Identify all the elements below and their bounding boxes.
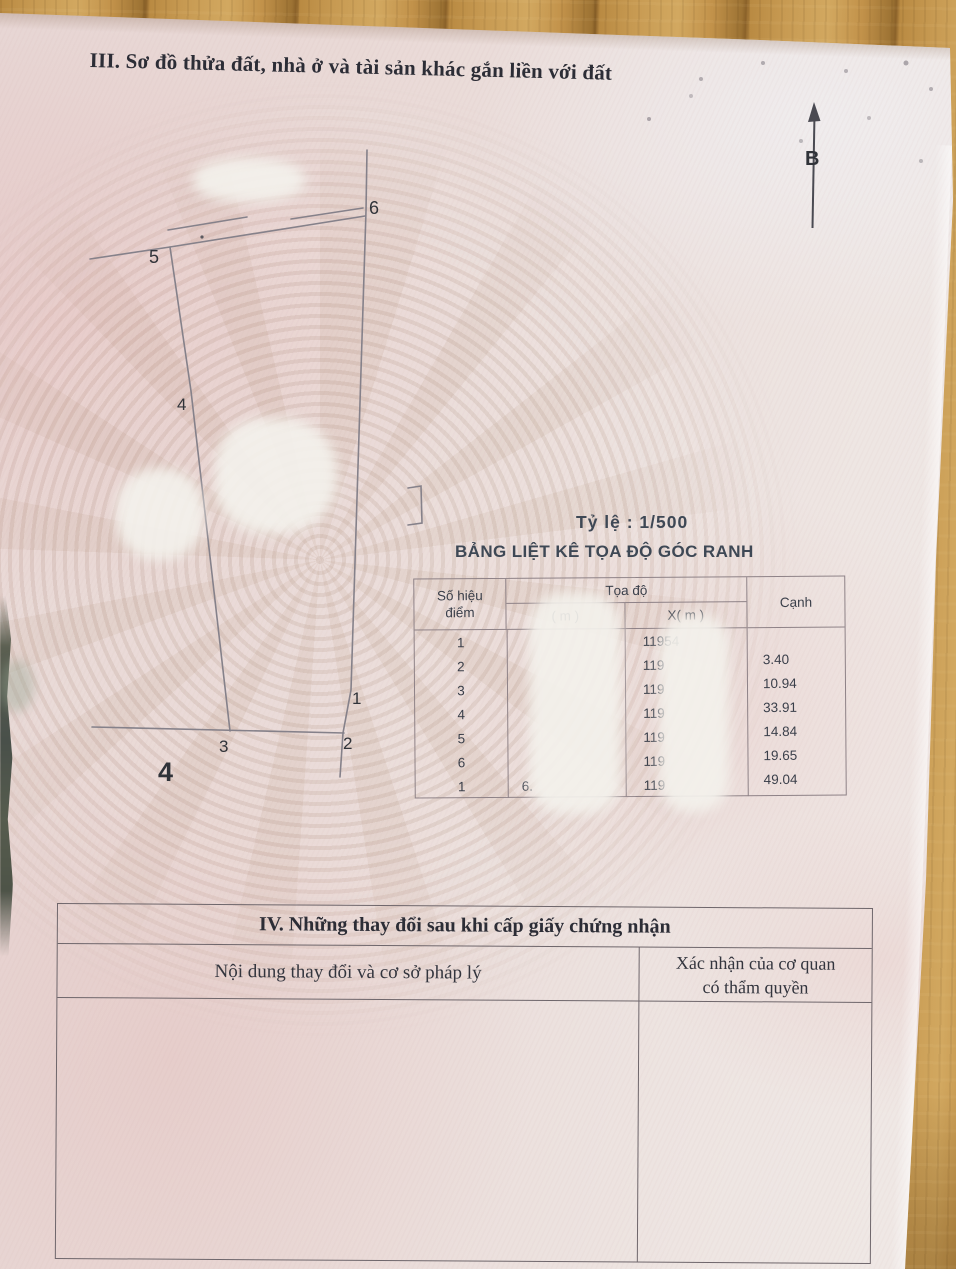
coordinate-table-header: Số hiệu điểm Tọa độ ( m ) X( m ) Cạnh <box>414 577 844 631</box>
boundary-5-6 <box>90 216 365 259</box>
adjacent-parcel-label: 4 <box>158 757 173 787</box>
redaction-blur-top-edge <box>193 158 305 202</box>
edge-length-2-3: 10.94 <box>763 672 843 697</box>
edge-length-6-1: 49.04 <box>764 768 844 793</box>
point-label-6: 6 <box>369 198 379 218</box>
header-point-line1: Số hiệu <box>437 587 483 604</box>
point-label-4: 4 <box>177 395 186 414</box>
section4-body <box>56 998 872 1263</box>
coord-table-title: BẢNG LIỆT KÊ TỌA ĐỘ GÓC RANH <box>455 542 754 562</box>
scale-label: Tỷ lệ : 1/500 <box>576 512 688 533</box>
certificate-paper: III. Sơ đồ thửa đất, nhà ở và tài sản kh… <box>0 0 956 1269</box>
point-label-3: 3 <box>219 737 228 756</box>
cell-point: 1 <box>416 778 508 794</box>
coordinate-table-body: 1 11954 2 119 3 119 4 119 <box>415 628 846 799</box>
boundary-right-6-1-2 <box>340 150 367 777</box>
confirm-header-line2: có thẩm quyền <box>702 974 808 999</box>
redaction-blur-x-column <box>659 614 729 812</box>
boundary-bottom-3-2 <box>92 727 344 733</box>
cell-point: 1 <box>415 634 507 650</box>
north-arrow: B <box>805 102 821 228</box>
edge-length-4-5: 14.84 <box>763 720 843 745</box>
confirm-header-line1: Xác nhận của cơ quan <box>676 950 836 975</box>
adjacent-boundary-mark <box>408 486 422 525</box>
edge-length-1-2: 3.40 <box>763 648 843 673</box>
section4-header-row: Nội dung thay đổi và cơ sở pháp lý Xác n… <box>57 944 871 1003</box>
header-edge-column: Cạnh <box>746 577 844 628</box>
photo-of-land-certificate: III. Sơ đồ thửa đất, nhà ở và tài sản kh… <box>0 0 956 1269</box>
north-label: B <box>805 148 819 170</box>
point-label-2: 2 <box>343 734 352 753</box>
redaction-blur-parcel-center <box>215 418 337 534</box>
redaction-blur-parcel-left <box>116 468 204 560</box>
cell-point: 4 <box>415 706 507 722</box>
edge-length-5-6: 19.65 <box>763 744 843 769</box>
point-label-5: 5 <box>149 247 159 267</box>
section4-col-content-header: Nội dung thay đổi và cơ sở pháp lý <box>57 944 638 1001</box>
cell-point: 3 <box>415 682 507 698</box>
boundary-5-6-double-near-5 <box>168 217 247 230</box>
section4-col-confirm-header: Xác nhận của cơ quan có thẩm quyền <box>638 948 871 1002</box>
cell-point: 2 <box>415 658 507 674</box>
section4-title: IV. Những thay đổi sau khi cấp giấy chứn… <box>58 904 872 949</box>
diagram-speck <box>200 235 203 238</box>
cell-point: 5 <box>415 730 507 746</box>
section4-body-divider <box>637 1002 640 1262</box>
header-point-number: Số hiệu điểm <box>414 579 506 630</box>
edge-length-3-4: 33.91 <box>763 696 843 721</box>
north-arrow-head <box>808 102 821 122</box>
header-point-line2: điểm <box>445 604 474 621</box>
redaction-blur-y-column <box>529 592 621 814</box>
cell-point: 6 <box>415 754 507 770</box>
coordinate-table: Số hiệu điểm Tọa độ ( m ) X( m ) Cạnh <box>413 575 847 798</box>
section4-table: IV. Những thay đổi sau khi cấp giấy chứn… <box>55 903 873 1264</box>
point-label-1: 1 <box>352 689 361 708</box>
